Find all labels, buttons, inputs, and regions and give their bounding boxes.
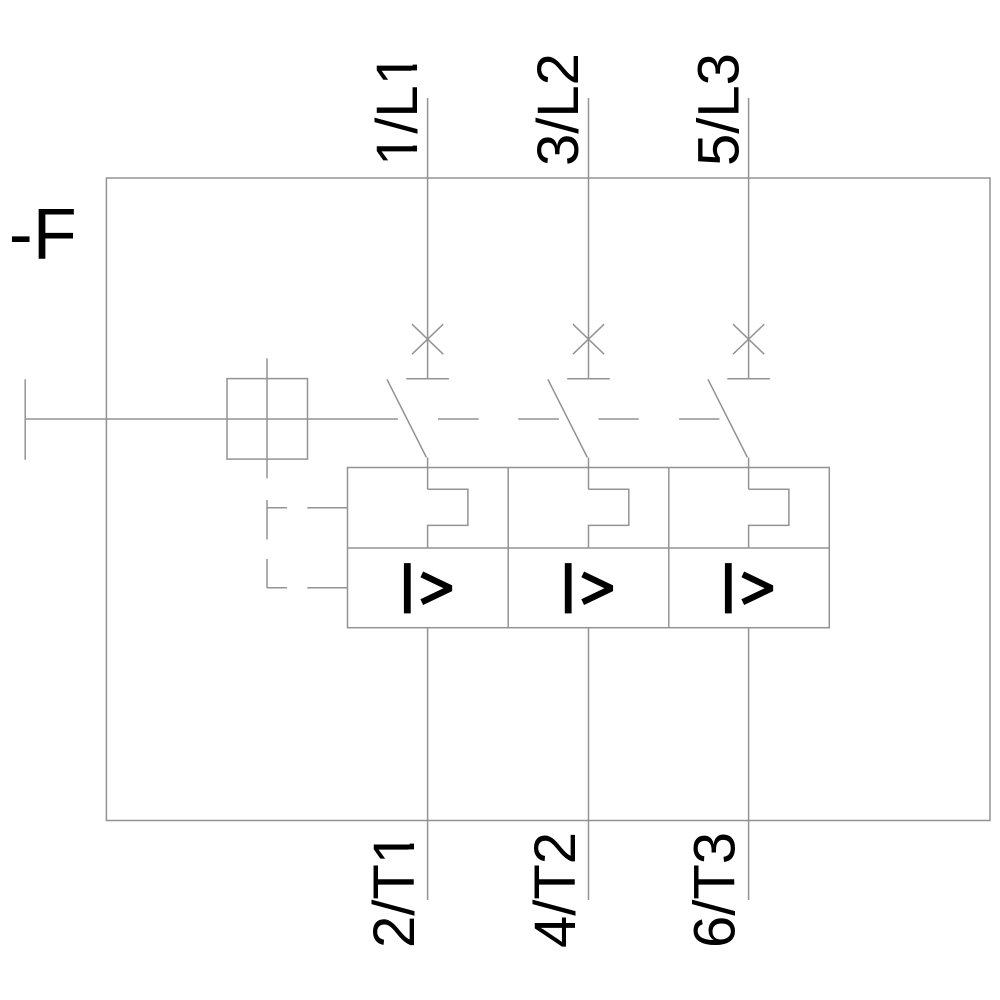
svg-text:4/T2: 4/T2 [523, 832, 588, 948]
svg-text:-F: -F [9, 195, 77, 275]
svg-text:3/L2: 3/L2 [526, 53, 591, 166]
svg-text:6/T3: 6/T3 [682, 832, 747, 948]
svg-text:1/L1: 1/L1 [365, 53, 430, 166]
svg-text:2/T1: 2/T1 [362, 832, 427, 948]
svg-text:5/L3: 5/L3 [686, 53, 751, 166]
